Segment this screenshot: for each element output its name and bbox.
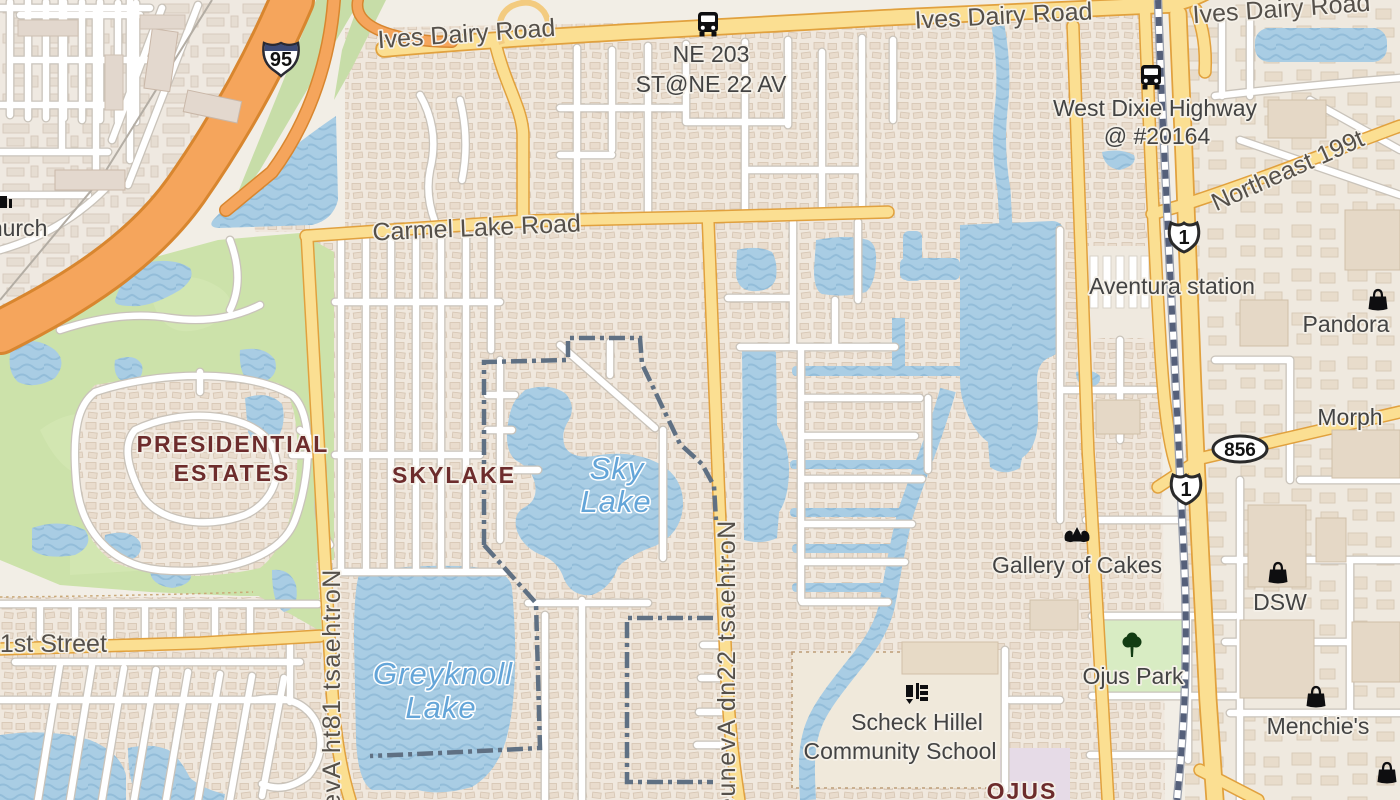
- svg-text:Greyknoll: Greyknoll: [373, 656, 513, 691]
- svg-text:il Church: il Church: [0, 215, 47, 241]
- svg-text:Aventura station: Aventura station: [1089, 273, 1255, 299]
- svg-text:eunevA dn22 tsaehtroN: eunevA dn22 tsaehtroN: [713, 519, 741, 800]
- svg-text:Sky: Sky: [590, 451, 646, 486]
- svg-text:91st Street: 91st Street: [0, 630, 107, 658]
- svg-text:SKYLAKE: SKYLAKE: [392, 462, 516, 488]
- svg-text:856: 856: [1224, 440, 1256, 461]
- svg-text:eunevA ht81 tsaehtroN: eunevA ht81 tsaehtroN: [318, 568, 346, 800]
- svg-text:Lake: Lake: [405, 690, 476, 725]
- svg-text:Ojus Park: Ojus Park: [1083, 663, 1184, 689]
- svg-text:Community School: Community School: [803, 738, 996, 764]
- svg-text:PRESIDENTIAL: PRESIDENTIAL: [137, 431, 330, 457]
- svg-text:ESTATES: ESTATES: [174, 460, 291, 486]
- svg-text:West Dixie Highway: West Dixie Highway: [1053, 95, 1258, 121]
- svg-text:1: 1: [1180, 479, 1191, 501]
- svg-text:95: 95: [270, 49, 292, 71]
- svg-text:ST@NE 22 AV: ST@NE 22 AV: [636, 71, 787, 97]
- svg-text:@ #20164: @ #20164: [1104, 123, 1211, 149]
- svg-text:DSW: DSW: [1253, 589, 1307, 615]
- svg-text:NE 203: NE 203: [673, 41, 750, 67]
- svg-text:Morph: Morph: [1317, 404, 1382, 430]
- svg-text:Gallery of Cakes: Gallery of Cakes: [992, 552, 1162, 578]
- svg-text:Menchie's: Menchie's: [1267, 713, 1370, 739]
- svg-text:Lake: Lake: [580, 484, 651, 519]
- svg-text:Pandora: Pandora: [1303, 311, 1390, 337]
- svg-text:1: 1: [1178, 227, 1189, 249]
- svg-text:OJUS: OJUS: [987, 778, 1058, 800]
- svg-text:Scheck Hillel: Scheck Hillel: [851, 709, 983, 735]
